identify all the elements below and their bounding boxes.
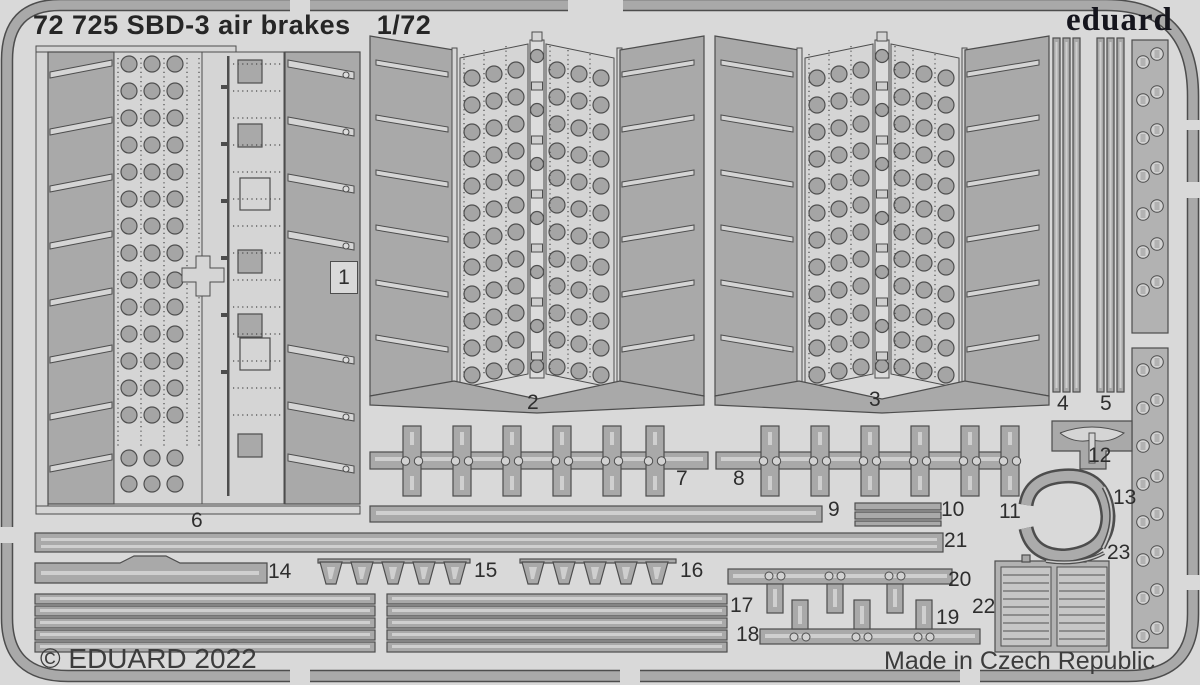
eduard-logo: eduard	[1066, 2, 1173, 39]
part-label-6: 6	[191, 510, 203, 531]
clip-strip-column	[1132, 40, 1168, 648]
part-6-air-brake-panel	[36, 46, 360, 514]
product-name: SBD-3 air brakes	[127, 10, 351, 40]
part-label-18: 18	[736, 624, 759, 645]
part-label-4: 4	[1057, 393, 1069, 414]
strip-21	[35, 533, 943, 552]
part-label-20: 20	[948, 569, 971, 590]
strip-14	[35, 556, 267, 583]
part-label-19: 19	[936, 607, 959, 628]
part-3-air-brake	[715, 32, 1049, 413]
part-5-strips	[1097, 38, 1124, 392]
part-4-strips	[1053, 38, 1080, 392]
part-2-air-brake	[370, 32, 704, 413]
part-label-11: 11	[999, 501, 1021, 522]
part-label-22: 22	[972, 596, 995, 617]
part-label-9: 9	[828, 499, 840, 520]
fret-artwork	[0, 0, 1200, 685]
made-in-text: Made in Czech Republic	[884, 647, 1155, 676]
bracket-strip-16	[520, 559, 676, 584]
sheet-title: 72 725SBD-3 air brakes1/72	[33, 10, 431, 41]
part-label-16: 16	[680, 560, 703, 581]
scale-label: 1/72	[377, 10, 432, 40]
part-label-8: 8	[733, 468, 745, 489]
curved-parts-11-13-23	[1026, 476, 1112, 562]
product-code: 72 725	[33, 10, 119, 40]
part-label-14: 14	[268, 561, 291, 582]
hinge-strip-7	[370, 426, 708, 496]
pe-fret-sheet: 72 725SBD-3 air brakes1/72 eduard © EDUA…	[0, 0, 1200, 685]
part-label-2: 2	[527, 392, 539, 413]
part-label-17: 17	[730, 595, 753, 616]
part-label-10: 10	[941, 499, 964, 520]
part-label-21: 21	[944, 530, 967, 551]
part-label-13: 13	[1113, 487, 1136, 508]
part-label-3: 3	[869, 389, 881, 410]
part-label-1: 1	[330, 261, 358, 294]
strip-10	[855, 503, 941, 526]
hinge-strip-8	[716, 426, 1021, 496]
part-label-15: 15	[474, 560, 497, 581]
part-label-5: 5	[1100, 393, 1112, 414]
copyright-text: © EDUARD 2022	[40, 643, 257, 675]
part-label-23: 23	[1107, 542, 1130, 563]
bracket-strip-15	[318, 559, 470, 584]
louver-panels-22	[995, 555, 1109, 652]
part-label-12: 12	[1088, 445, 1111, 466]
strip-9	[370, 506, 822, 522]
part-label-7: 7	[676, 468, 688, 489]
